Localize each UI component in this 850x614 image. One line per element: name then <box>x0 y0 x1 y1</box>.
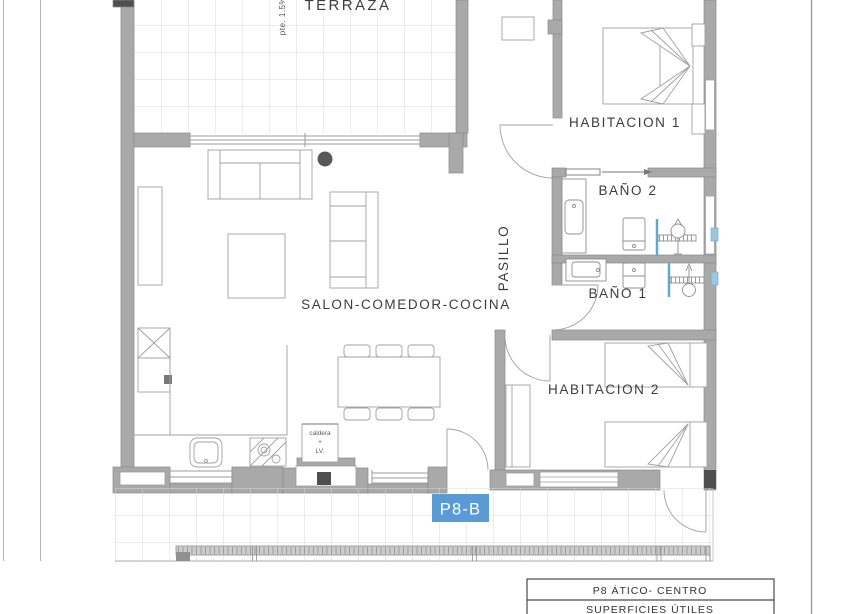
salon-terrace-door <box>447 429 488 470</box>
chair <box>376 345 402 357</box>
flue-block <box>317 472 331 485</box>
bano2-label: BAÑO 2 <box>598 183 657 198</box>
title-block-row2: SUPERFICIES ÚTILES <box>586 603 714 614</box>
habitacion2-label: HABITACION 2 <box>548 382 660 397</box>
chair <box>408 408 434 420</box>
terraza-label: TERRAZA <box>305 0 392 14</box>
hall-closet <box>502 17 534 40</box>
pasillo-label: PASILLO <box>496 225 511 291</box>
wall-hinge-pier <box>548 20 562 34</box>
nightstand <box>692 104 705 134</box>
wall-hall-stub <box>449 133 463 173</box>
unit-tag-label: P8-B <box>440 501 481 519</box>
vanity <box>562 179 586 253</box>
salon-label: SALON-COMEDOR-COCINA <box>301 297 511 312</box>
hab2-door <box>505 335 550 381</box>
toilet <box>623 263 645 288</box>
wall-bano2-top-b <box>648 168 716 177</box>
wall-terrace-right <box>456 0 468 133</box>
wall-left-exterior <box>121 6 134 492</box>
bano1-label: BAÑO 1 <box>588 286 647 301</box>
room-habitacion2: HABITACION 2 <box>505 335 707 467</box>
shower-head <box>671 224 685 238</box>
kitchen: caldera + LV. <box>134 328 440 467</box>
towel-rail-icon <box>711 272 718 285</box>
wardrobe <box>506 385 530 467</box>
nightstand <box>692 24 705 46</box>
title-block: P8 ÁTICO- CENTRO SUPERFICIES ÚTILES <box>527 579 774 614</box>
room-bano2: BAÑO 2 <box>562 169 696 256</box>
title-block-row1: P8 ÁTICO- CENTRO <box>593 584 708 597</box>
chair <box>344 345 370 357</box>
column-marker <box>318 152 333 167</box>
wall-corner-block <box>704 470 716 489</box>
floor-plan-svg: TERRAZA pte. 1.5% <box>0 0 850 614</box>
utility-line2: + <box>318 439 322 446</box>
habitacion1-label: HABITACION 1 <box>569 115 681 130</box>
wall-bano2-top-a <box>552 168 566 177</box>
railing-post-block <box>176 552 190 561</box>
utility-line3: LV. <box>316 448 325 455</box>
wall-pasillo-right <box>552 177 562 285</box>
sideboard <box>138 187 162 285</box>
wall-hab2-top <box>552 330 716 340</box>
shower-head <box>683 284 696 297</box>
wall-hab1-left <box>553 0 562 118</box>
utility-line1: caldera <box>309 430 331 437</box>
towel-rail-icon <box>711 228 718 241</box>
room-pasillo: PASILLO <box>496 17 553 291</box>
chair <box>376 408 402 420</box>
bed-double <box>603 28 693 104</box>
dining-table <box>338 357 440 407</box>
wall-terrace-sill-left <box>134 133 190 147</box>
terrace-window <box>190 133 420 147</box>
floor-plan-page: TERRAZA pte. 1.5% <box>0 0 850 614</box>
room-salon: SALON-COMEDOR-COCINA <box>138 150 511 312</box>
hob <box>250 438 286 466</box>
toilet <box>623 218 645 250</box>
hab1-door <box>500 125 553 178</box>
unit-tag: P8-B <box>432 494 489 522</box>
room-bano1: BAÑO 1 <box>553 259 704 330</box>
terrace-tiles <box>134 0 456 133</box>
chair <box>344 408 370 420</box>
room-terraza: TERRAZA pte. 1.5% <box>134 0 456 133</box>
terrace-slope-note: pte. 1.5% <box>277 0 287 35</box>
chair <box>408 345 434 357</box>
wall-hab2-left <box>495 330 505 473</box>
coffee-table <box>228 234 285 298</box>
sliding-door <box>566 169 600 175</box>
wall-cap-topleft <box>113 0 134 7</box>
room-habitacion1: HABITACION 1 <box>569 24 705 134</box>
lower-terrace: P8-B <box>115 488 713 561</box>
